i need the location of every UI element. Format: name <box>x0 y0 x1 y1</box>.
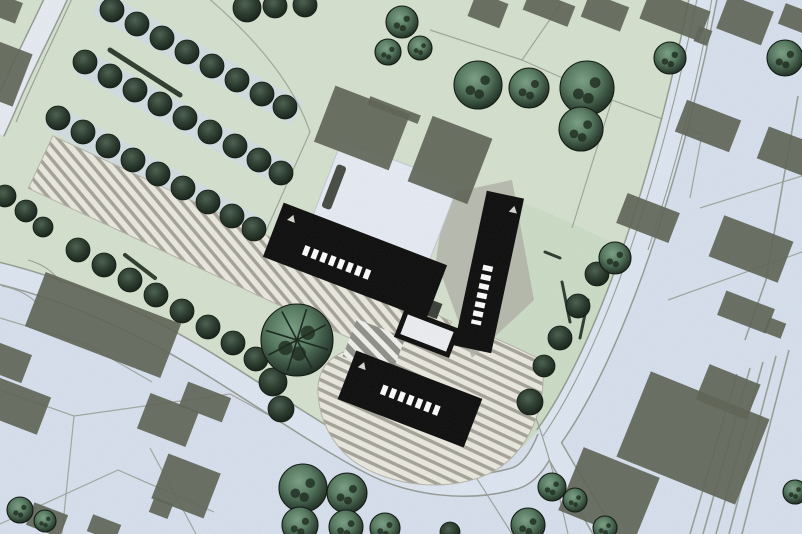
site-plan-screenshot <box>0 0 802 534</box>
scan-noise-overlay <box>0 0 802 534</box>
site-plan-svg <box>0 0 802 534</box>
